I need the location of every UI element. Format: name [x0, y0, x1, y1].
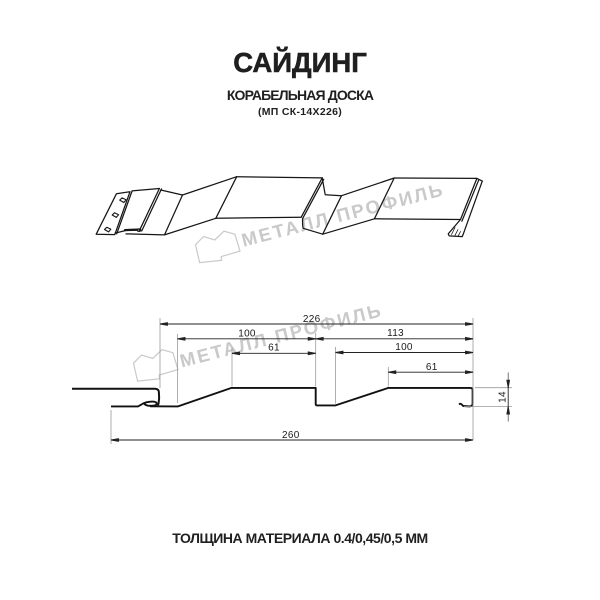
svg-text:100: 100 [395, 342, 413, 353]
svg-text:100: 100 [238, 329, 256, 340]
svg-text:МЕТАЛЛ ПРОФИЛЬ: МЕТАЛЛ ПРОФИЛЬ [178, 299, 385, 371]
svg-text:МЕТАЛЛ ПРОФИЛЬ: МЕТАЛЛ ПРОФИЛЬ [239, 178, 446, 250]
svg-text:14: 14 [497, 391, 508, 403]
svg-text:61: 61 [268, 342, 280, 353]
svg-text:61: 61 [426, 362, 438, 373]
svg-text:260: 260 [282, 430, 300, 441]
svg-text:113: 113 [387, 328, 404, 339]
svg-text:226: 226 [303, 314, 321, 325]
